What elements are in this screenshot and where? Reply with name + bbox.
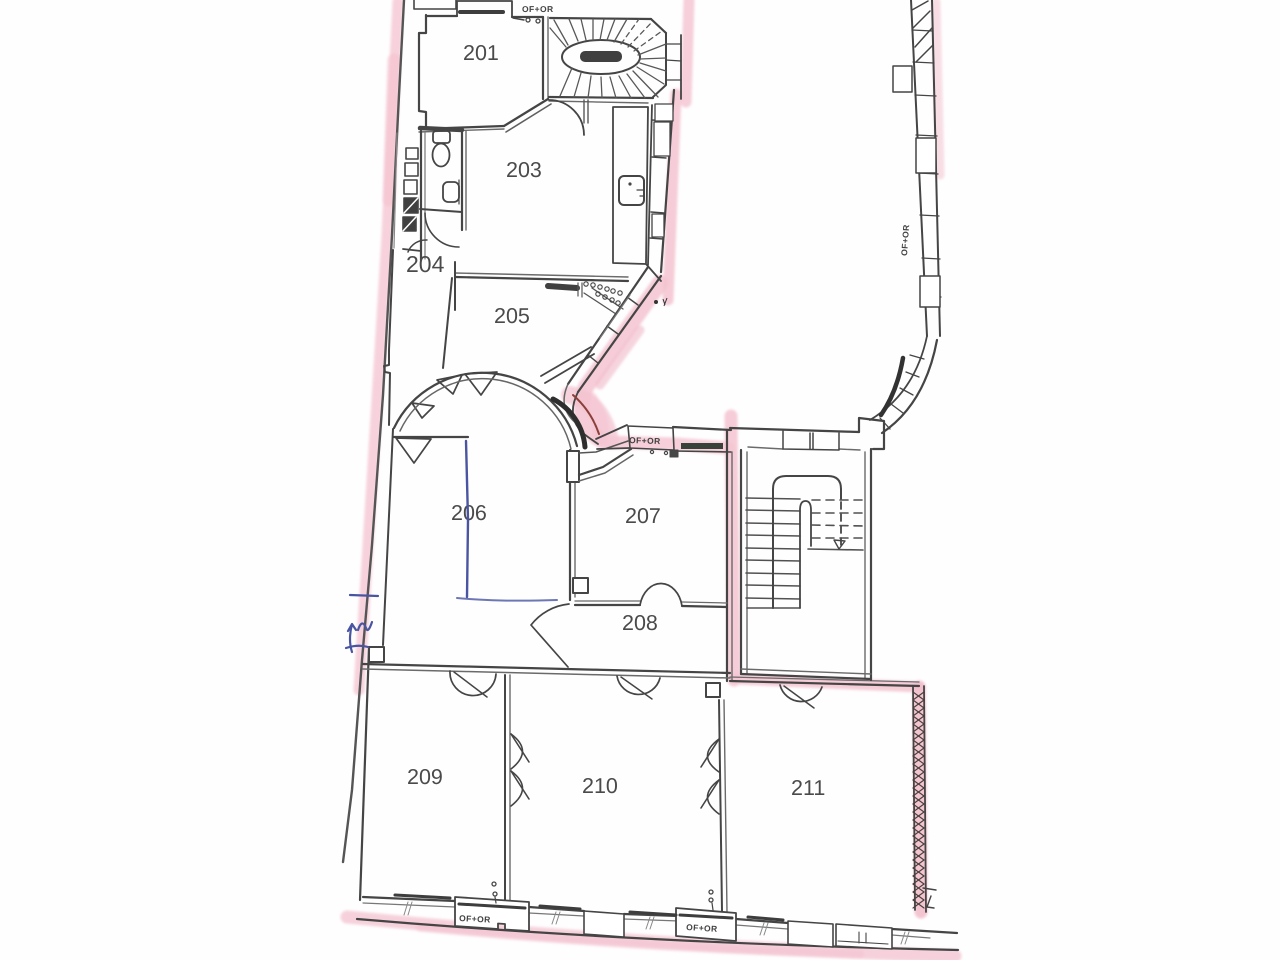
svg-text:OF+OR: OF+OR — [686, 922, 718, 934]
svg-text:209: 209 — [407, 765, 443, 789]
svg-text:208: 208 — [622, 611, 658, 635]
svg-text:OF+OR: OF+OR — [522, 4, 554, 14]
svg-text:211: 211 — [791, 776, 825, 800]
svg-text:205: 205 — [494, 304, 530, 328]
svg-text:OF+OR: OF+OR — [629, 435, 661, 446]
svg-text:OF+OR: OF+OR — [459, 913, 491, 925]
svg-text:204: 204 — [406, 251, 445, 277]
svg-text:203: 203 — [506, 158, 542, 182]
svg-text:210: 210 — [582, 774, 618, 798]
svg-text:207: 207 — [625, 504, 661, 528]
svg-text:201: 201 — [463, 41, 499, 65]
